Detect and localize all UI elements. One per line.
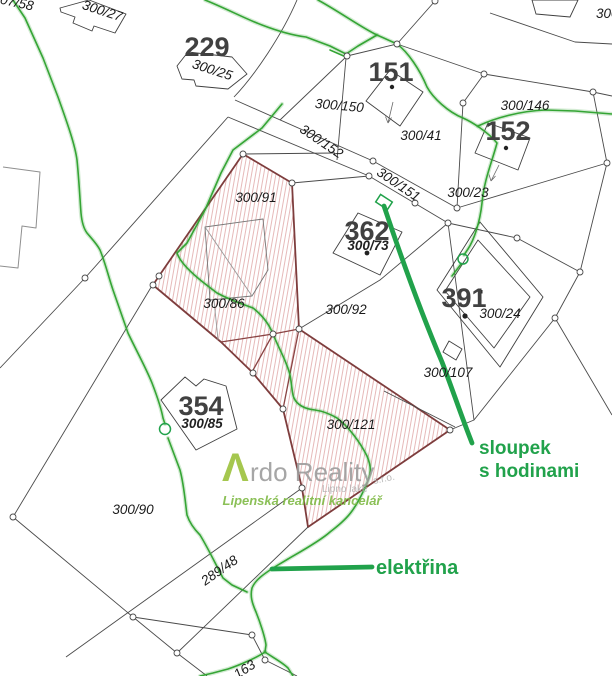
cadastral-map: Λ rdo Reality s.r.o. Lipno lake Lipenská… xyxy=(0,0,612,676)
sloupek-label-line2: s hodinami xyxy=(479,461,579,482)
sloupek-label-line1: sloupek xyxy=(479,438,551,459)
parcel-label-300-121: 300/121 xyxy=(327,417,376,432)
pointer-elektrina xyxy=(272,567,372,569)
parcel-label-300-92: 300/92 xyxy=(325,302,367,317)
parcel-label-300-91: 300/91 xyxy=(235,190,276,205)
parcel-label-300-151: 300/151 xyxy=(374,164,423,204)
cadastral-map-svg: Λ rdo Reality s.r.o. Lipno lake Lipenská… xyxy=(0,0,612,676)
parcel-label-300-23: 300/23 xyxy=(447,185,489,200)
parcel-label-300-86: 300/86 xyxy=(203,296,245,311)
parcel-label-300-27: 300/27 xyxy=(80,0,124,24)
parcel-label-300-24: 300/24 xyxy=(479,306,520,321)
building-label-300-85: 300/85 xyxy=(181,416,223,431)
elektrina-label: elektřina xyxy=(376,557,459,579)
watermark-lambda-logo-icon: Λ xyxy=(222,446,249,490)
parcel-label-300-41: 300/41 xyxy=(400,128,441,143)
building-label-152: 152 xyxy=(485,116,530,146)
watermark-brand: rdo Reality xyxy=(250,457,374,487)
building-label-300-73: 300/73 xyxy=(347,238,389,253)
parcel-label-289-48: 289/48 xyxy=(197,552,241,589)
parcel-label-300-107: 300/107 xyxy=(424,365,473,380)
parcel-label-07-58: 07/58 xyxy=(0,0,35,14)
parcel-label-300-partial: 300 xyxy=(596,6,612,21)
parcel-label-300-90: 300/90 xyxy=(112,502,154,517)
building-label-151: 151 xyxy=(368,57,413,87)
watermark-tagline: Lipenská realitní kancelář xyxy=(223,493,384,508)
parcel-label-300-146: 300/146 xyxy=(501,98,550,113)
building-label-229: 229 xyxy=(184,32,229,62)
parcel-label-300-150: 300/150 xyxy=(314,96,364,115)
